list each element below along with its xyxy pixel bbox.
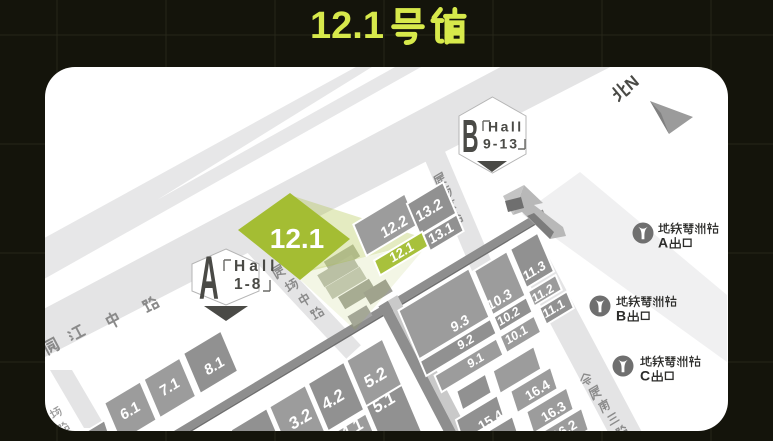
svg-text:A: A	[658, 235, 668, 251]
svg-text:B: B	[616, 308, 626, 324]
svg-text:Hall: Hall	[488, 119, 524, 135]
svg-text:9-13: 9-13	[483, 136, 519, 152]
svg-text:Hall: Hall	[234, 258, 278, 275]
svg-text:12.1: 12.1	[270, 223, 325, 254]
svg-text:B: B	[462, 110, 479, 162]
svg-text:C: C	[640, 368, 650, 384]
svg-text:A: A	[199, 245, 219, 313]
svg-text:1-8: 1-8	[234, 276, 262, 293]
svg-text:12.1: 12.1	[310, 5, 384, 47]
